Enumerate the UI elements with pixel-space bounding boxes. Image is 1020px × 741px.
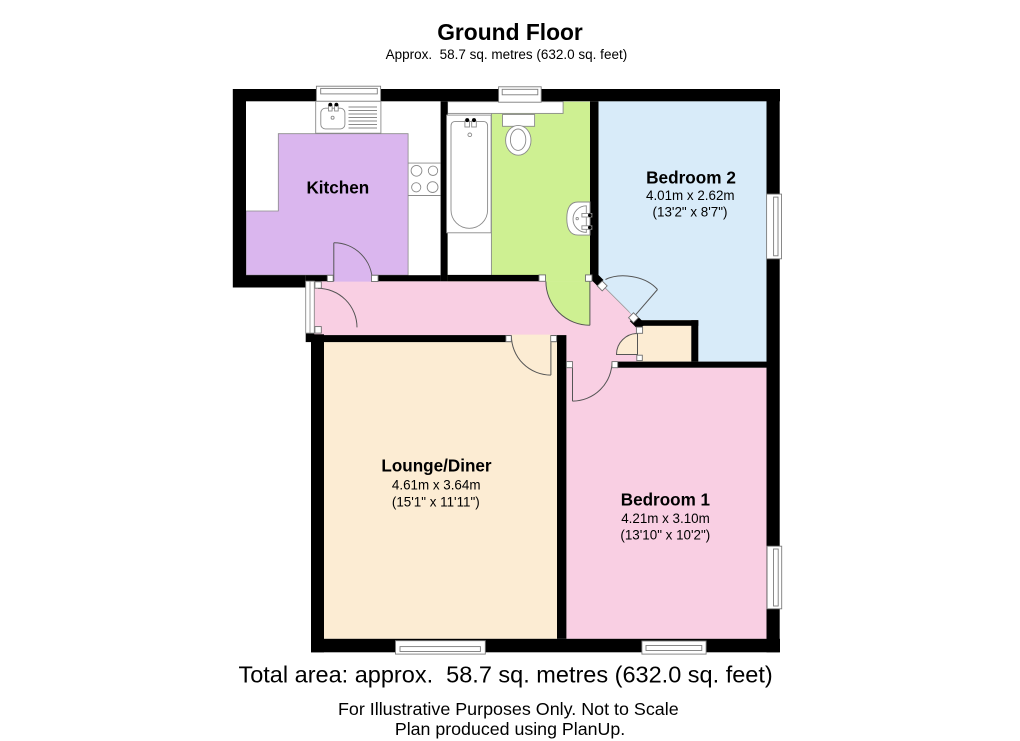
svg-text:Bedroom 2: Bedroom 2 (646, 167, 736, 187)
svg-text:(15'1" x 11'11"): (15'1" x 11'11") (392, 494, 480, 509)
svg-text:(13'2" x 8'7"): (13'2" x 8'7") (653, 204, 728, 219)
svg-text:Bedroom 1: Bedroom 1 (621, 490, 711, 509)
svg-text:Approx. 58.7 sq. metres (632.: Approx. 58.7 sq. metres (632.0 sq. feet) (386, 47, 628, 62)
svg-text:4.21m x 3.10m: 4.21m x 3.10m (621, 511, 710, 526)
svg-text:Total area: approx. 58.7 sq.: Total area: approx. 58.7 sq. metres (632… (238, 662, 772, 688)
svg-text:Lounge/Diner: Lounge/Diner (381, 457, 492, 476)
svg-text:4.61m x 3.64m: 4.61m x 3.64m (392, 477, 481, 492)
svg-text:Plan produced using PlanUp.: Plan produced using PlanUp. (395, 719, 625, 739)
svg-text:(13'10" x 10'2"): (13'10" x 10'2") (620, 528, 710, 543)
svg-text:Kitchen: Kitchen (306, 179, 369, 198)
svg-text:Ground Floor: Ground Floor (437, 19, 583, 45)
svg-text:For Illustrative Purposes Only: For Illustrative Purposes Only. Not to S… (338, 699, 679, 719)
svg-text:4.01m x 2.62m: 4.01m x 2.62m (646, 188, 735, 203)
